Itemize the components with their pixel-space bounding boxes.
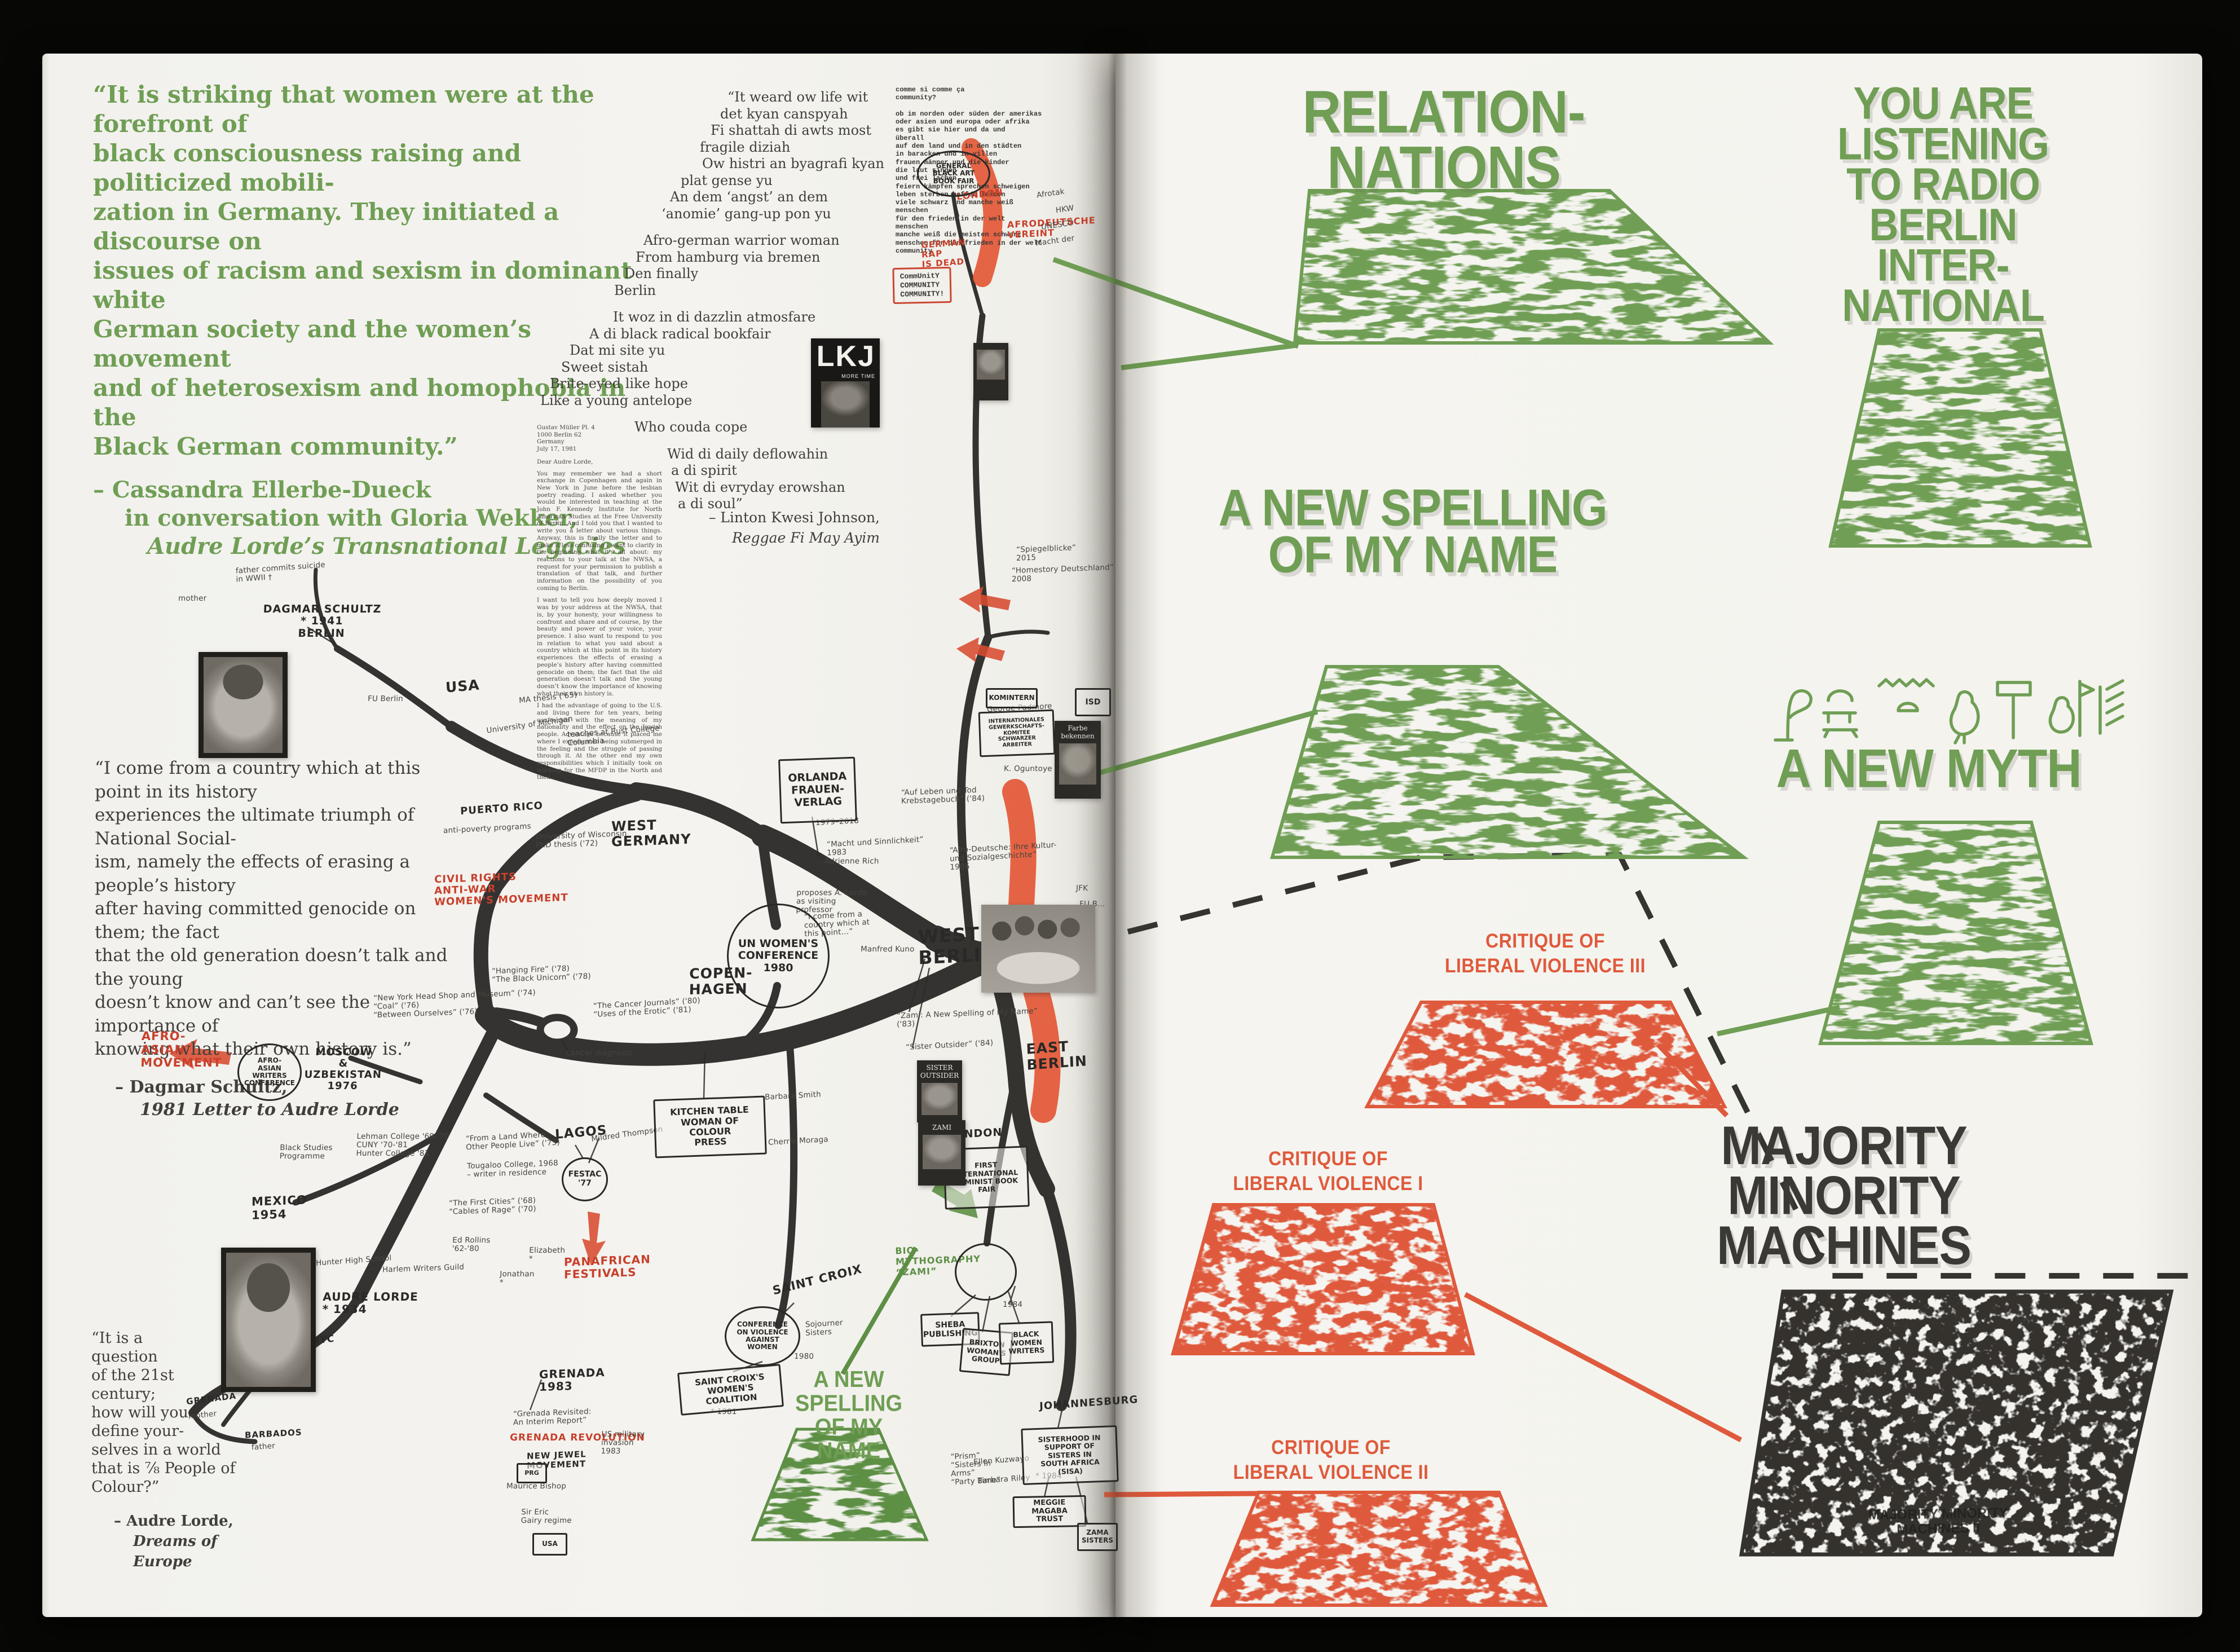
map-photo: Farbe bekennen — [1055, 721, 1101, 799]
poem-line: det kyan canspyah — [720, 106, 888, 123]
map-box: MEGGIE MAGABA TRUST — [1013, 1495, 1087, 1528]
poem-line: Afro-german warrior woman — [643, 232, 888, 249]
poem-line: Wit di evryday erowshan — [675, 479, 888, 496]
album-subtitle: MORE TIME — [811, 373, 880, 379]
map-circle: AFRO- ASIAN WRITERS CONFERENCE — [237, 1043, 302, 1101]
map-label: Black Studies Programme — [279, 1144, 333, 1161]
label-critique-liberal-violence-2: CRITIQUE OF LIBERAL VIOLENCE II — [1221, 1435, 1441, 1484]
letter-salutation: Dear Audre Lorde, — [537, 459, 662, 466]
map-label: “Grenada Revisited: An Interim Report” — [513, 1408, 592, 1428]
map-photo — [221, 1248, 316, 1392]
map-photo: SISTER OUTSIDER — [917, 1060, 962, 1122]
map-box: SAINT CROIX'S WOMEN'S COALITION — [677, 1364, 784, 1416]
map-circle: UN WOMEN'S CONFERENCE 1980 — [727, 904, 830, 1008]
album-photo — [821, 381, 869, 428]
headline-new-myth: A NEW MYTH — [1737, 743, 2120, 794]
map-box: BLACK WOMEN WRITERS — [999, 1321, 1055, 1364]
map-label: JFK — [1076, 884, 1088, 893]
headline-radio-berlin: YOU ARE LISTENING TO RADIO BERLIN INTER-… — [1781, 83, 2105, 326]
map-label: “Hanging Fire” ('78) “The Black Unicorn”… — [492, 964, 591, 984]
map-box: INTERNATIONALES GEWERKSCHAFTS- KOMITEE S… — [978, 710, 1056, 757]
map-label: Jonathan * — [499, 1270, 534, 1287]
label-critique-liberal-violence-1: CRITIQUE OF LIBERAL VIOLENCE I — [1218, 1146, 1438, 1196]
poem-line: It woz in di dazzlin atmosfare — [613, 309, 888, 326]
map-photo: ZAMI — [918, 1120, 965, 1186]
map-box: USA — [532, 1533, 567, 1556]
map-circle: FESTAC '77 — [562, 1157, 608, 1201]
cover-title: ZAMI — [932, 1124, 951, 1131]
hieroglyphs-icon — [1775, 680, 2123, 743]
map-label: USA — [445, 677, 480, 695]
map-label: GRENADA 1983 — [539, 1366, 605, 1394]
map-box: SISTERHOOD IN SUPPORT OF SISTERS IN SOUT… — [1021, 1425, 1118, 1485]
map-photo: LKJMORE TIME — [811, 338, 880, 428]
map-label: AFRO- ASIAN MOVEMENT — [140, 1030, 223, 1070]
cover-photo — [921, 1083, 958, 1115]
community-box: CommUnitY COMMUNITY COMMUNITY! — [892, 267, 951, 304]
poem-line: Den finally — [624, 266, 888, 283]
book-spread: “It is striking that women were at the f… — [0, 0, 2240, 1652]
map-label: Sojourner Sisters — [805, 1319, 843, 1338]
map-box: ISD — [1075, 688, 1111, 716]
poem-line: plat gense yu — [681, 173, 888, 190]
map-label: CIVIL RIGHTS ANTI-WAR WOMEN'S MOVEMENT — [434, 870, 568, 909]
map-circle — [955, 1243, 1017, 1301]
letter-address: Gustav Müller Pl. 4 1000 Berlin 62 Germa… — [537, 424, 662, 453]
map-label: US military invasion 1983 — [601, 1430, 645, 1456]
poem-line: From hamburg via bremen — [636, 249, 888, 266]
map-label: DAGMAR SCHULTZ * 1941 BERLIN — [262, 603, 382, 640]
map-label: Sir Eric Gairy regime — [521, 1508, 572, 1525]
caption-new-spelling-left: A NEW SPELLING OF MY NAME — [787, 1368, 911, 1463]
map-label: Lehman College '69-'70 CUNY '70-'81 Hunt… — [356, 1133, 449, 1158]
map-label: Ed Rollins '62-'80 — [452, 1236, 490, 1253]
map-circle: CONFERENCE ON VIOLENCE AGAINST WOMEN — [725, 1306, 800, 1366]
map-label: “The First Cities” ('68) “Cables of Rage… — [449, 1196, 536, 1217]
headline-relation-nations: RELATION- NATIONS — [1286, 85, 1602, 196]
map-label: MEXICO 1954 — [252, 1193, 307, 1222]
map-label: Elizabeth * — [528, 1246, 565, 1263]
map-label: University of Wisconsin PhD thesis ('72) — [536, 830, 627, 850]
headline-new-spelling: A NEW SPELLING OF MY NAME — [1173, 485, 1652, 579]
map-box: KOMINTERN — [986, 688, 1038, 708]
poem-lkj-attribution: – Linton Kwesi Johnson, Reggae Fi May Ay… — [694, 508, 880, 548]
label-critique-liberal-violence-3: CRITIQUE OF LIBERAL VIOLENCE III — [1432, 928, 1658, 978]
poem-line: An dem ‘angst’ an dem — [670, 189, 888, 206]
map-label: father — [252, 1442, 275, 1452]
poem-line: a di spirit — [671, 462, 888, 479]
poem-line: fragile diziah — [700, 139, 888, 156]
letter-paragraph: You may remember we had a short exchange… — [537, 470, 662, 592]
map-label: Maurice Bishop — [506, 1482, 567, 1491]
map-box: ZAMA SISTERS — [1077, 1523, 1118, 1551]
cover-photo — [977, 350, 1005, 380]
letter-paragraph: I want to tell you how deeply moved I wa… — [537, 597, 662, 697]
map-label: PANAFRICAN FESTIVALS — [564, 1253, 651, 1281]
cover-title: SISTER OUTSIDER — [920, 1064, 959, 1080]
cover-title: Farbe bekennen — [1061, 724, 1094, 740]
map-label: EAST BERLIN — [1026, 1037, 1087, 1073]
album-title: LKJ — [811, 338, 880, 373]
map-photo — [981, 905, 1095, 993]
map-label: Manfred Kuno — [861, 945, 915, 954]
map-label: cancer diagnosis — [566, 1049, 632, 1058]
cover-photo — [923, 1135, 960, 1169]
map-label: “Auf Leben und Tod Krebstagebuch” ('84) — [901, 786, 985, 805]
map-box: ORLANDA FRAUEN- VERLAG — [778, 757, 857, 824]
map-label: 1984 — [1003, 1301, 1023, 1309]
poem-line: “It weard ow life wit — [727, 89, 888, 106]
headline-majority-minority: MAJORITY MINORITY MACHINES — [1670, 1121, 2017, 1271]
map-label: “Spiegelblicke” 2015 — [1016, 544, 1076, 563]
caption-machines-2: MAJORITY MINORITY MACHINES II — [1840, 1505, 2038, 1538]
map-label: 1980 — [794, 1353, 814, 1361]
map-label: AUDRE LORDE * 1934 — [322, 1290, 418, 1316]
poem-line: ‘anomie’ gang-up pon yu — [662, 206, 888, 223]
map-label: mother — [178, 594, 207, 603]
map-label: MOSCOW & UZBEKISTAN 1976 — [304, 1047, 383, 1092]
poem-line: Wid di daily deflowahin — [667, 446, 888, 463]
poem-line: Ow histri an byagrafi kyan — [702, 156, 888, 173]
map-photo — [199, 652, 288, 758]
map-label: K. Oguntoye — [1004, 765, 1052, 773]
map-label: GERMAN RAP IS DEAD — [921, 237, 967, 269]
map-label: Tougaloo College, 1968 – writer in resid… — [467, 1159, 558, 1179]
map-photo — [973, 343, 1008, 400]
poem-line: Berlin — [614, 283, 888, 299]
cover-photo — [1059, 743, 1096, 785]
map-label: Adrienne Rich — [824, 857, 879, 866]
poem-line: Fi shattah di awts most — [711, 122, 888, 139]
map-label: FU Berlin — [368, 695, 403, 703]
map-label: “Homestory Deutschland” 2008 — [1012, 563, 1114, 584]
map-circle: GENERAL BLACK ART BOOK FAIR — [917, 151, 990, 197]
map-box: PRG — [517, 1463, 547, 1483]
map-box: KITCHEN TABLE WOMAN OF COLOUR PRESS — [653, 1096, 767, 1158]
